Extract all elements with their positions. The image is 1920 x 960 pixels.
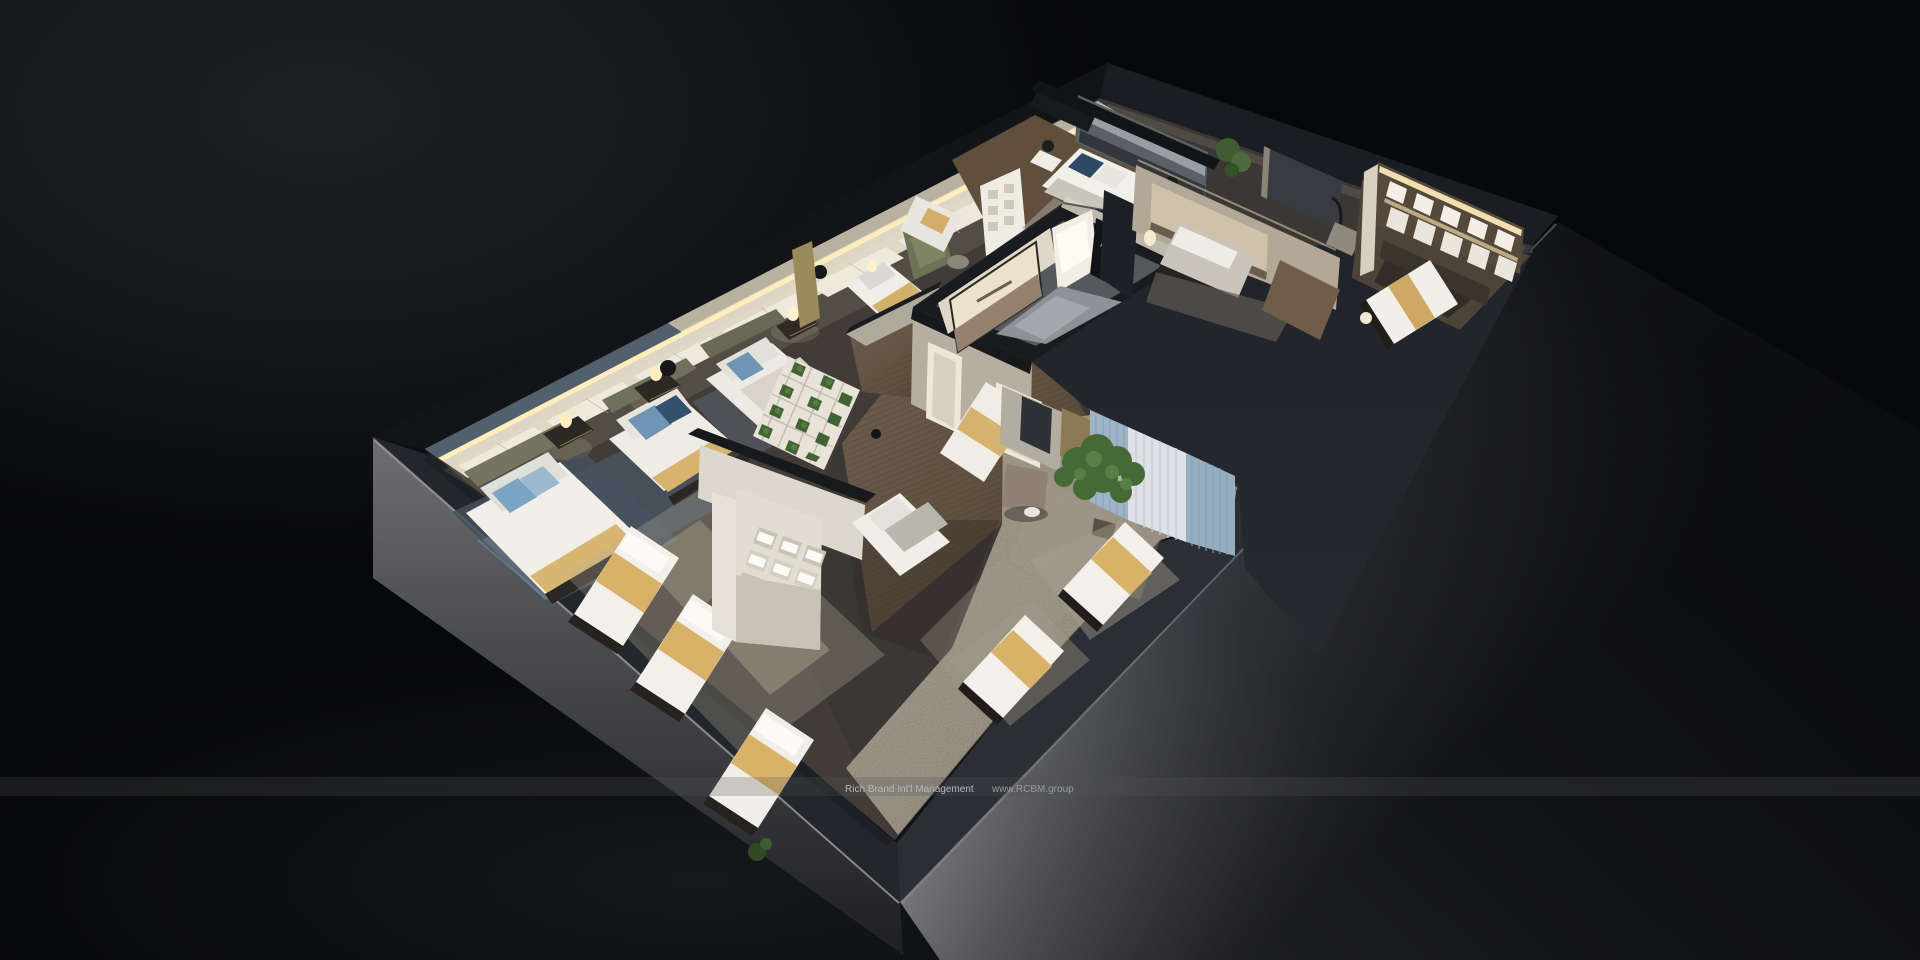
svg-text:www.RCBM.group: www.RCBM.group	[991, 784, 1074, 795]
svg-text:Rich Brand Int'l Management: Rich Brand Int'l Management	[845, 784, 974, 795]
